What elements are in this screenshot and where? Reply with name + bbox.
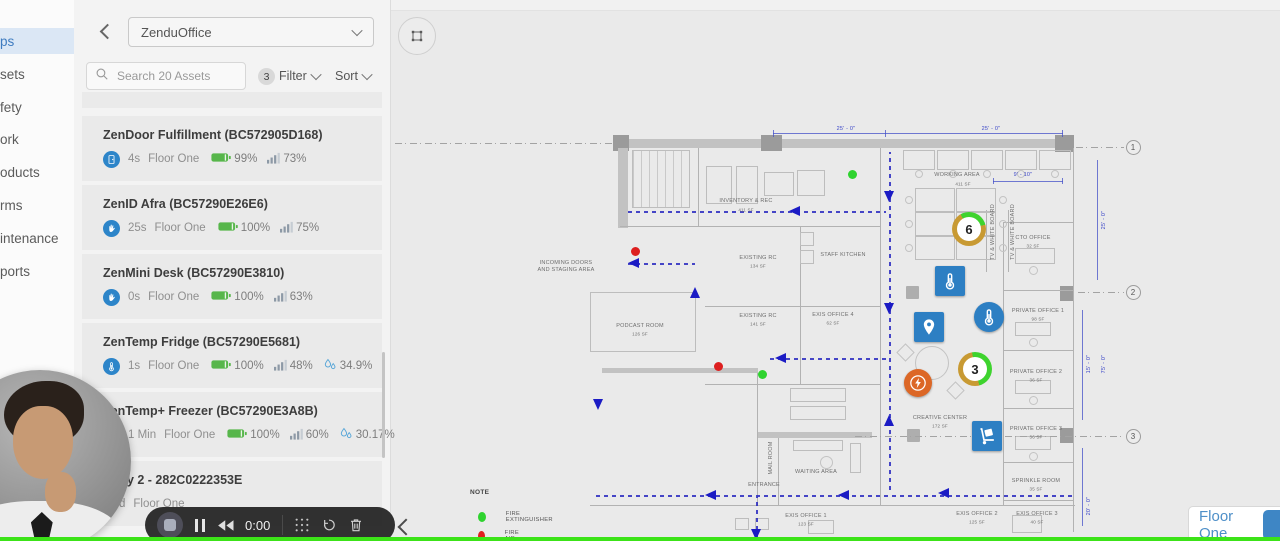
plan-disc	[1051, 170, 1059, 178]
humidity-group: 34.9%	[323, 358, 373, 374]
signal-group: 48%	[274, 359, 313, 374]
plan-line	[1003, 350, 1073, 351]
dimension-line	[1062, 178, 1063, 184]
reference-dash-line	[1076, 147, 1124, 148]
grid-reference-bubble: 3	[1126, 429, 1141, 444]
energy-marker[interactable]	[904, 369, 932, 397]
path-dash-line	[889, 152, 891, 490]
fire-extinguisher-dot	[848, 170, 857, 179]
legend-item: FIRE EXTINGUISHER	[478, 511, 555, 523]
asset-floor: Floor One	[148, 291, 199, 303]
battery-group: 100%	[218, 221, 270, 235]
asset-list-item[interactable]: ZenDoor Fulfillment (BC572905D168)4sFloo…	[82, 116, 382, 181]
asset-last-seen: 25s	[128, 222, 147, 234]
sidebar-item-sets[interactable]: sets	[0, 61, 74, 87]
signal-icon	[267, 152, 283, 167]
battery-group: 100%	[227, 428, 279, 442]
plan-line	[705, 306, 880, 307]
dimension-line	[1082, 310, 1083, 420]
plan-box	[793, 440, 843, 451]
room-label: 36 SF	[1029, 435, 1042, 440]
room-label: 126 SF	[632, 332, 648, 337]
room-label: PODCAST ROOM	[616, 323, 664, 329]
plan-box	[915, 236, 955, 260]
room-label: EXIS OFFICE 4	[812, 312, 853, 318]
dimension-line	[1082, 448, 1083, 526]
asset-name: ZenTemp+ Freezer (BC57290E3A8B)	[103, 404, 318, 418]
battery-group: 99%	[211, 152, 257, 166]
app-root: pssetsfetyorkoductsrmsintenanceports Zen…	[0, 0, 1280, 541]
list-scrollbar[interactable]	[382, 352, 385, 458]
direction-arrow-down	[884, 303, 894, 314]
plan-disc	[983, 170, 991, 178]
sidebar-item-rms[interactable]: rms	[0, 192, 74, 218]
signal-value: 60%	[306, 429, 329, 441]
plan-fill	[618, 148, 628, 228]
direction-arrow-left	[938, 488, 949, 498]
battery-icon	[211, 359, 234, 373]
humidity-value: 34.9%	[340, 360, 373, 372]
restart-icon[interactable]	[321, 517, 337, 533]
plan-box	[903, 150, 935, 170]
asset-floor: Floor One	[164, 429, 215, 441]
plan-disc	[905, 244, 913, 252]
room-label: EXIS OFFICE 3	[1016, 511, 1057, 517]
dimension-label: 9' - 10"	[1014, 172, 1033, 178]
building-selector[interactable]: ZenduOffice	[128, 17, 374, 47]
room-label: 411 SF	[738, 208, 753, 213]
plan-box	[797, 170, 825, 196]
signal-group: 73%	[267, 152, 306, 167]
dimension-label: 25' - 0"	[837, 126, 856, 132]
asset-list-item[interactable]: ZenTemp Fridge (BC57290E5681)1sFloor One…	[82, 323, 382, 388]
battery-icon	[211, 290, 234, 304]
floor-selector[interactable]: Floor One	[1188, 506, 1280, 541]
asset-last-seen: 1s	[128, 360, 140, 372]
asset-last-seen: 1 Min	[128, 429, 156, 441]
sidebar-item-ork[interactable]: ork	[0, 126, 74, 152]
direction-arrow-left	[628, 258, 639, 268]
direction-arrow-left	[705, 490, 716, 500]
fire-aid-dot	[714, 362, 723, 371]
plan-box	[1039, 150, 1071, 170]
sidebar-item-ps[interactable]: ps	[0, 28, 74, 54]
plan-line	[590, 505, 1075, 506]
dimension-label: 25' - 0"	[1101, 211, 1107, 230]
plan-disc	[820, 456, 833, 469]
grid-reference-bubble: 2	[1126, 285, 1141, 300]
battery-icon	[218, 221, 241, 235]
signal-value: 48%	[290, 360, 313, 372]
path-dash-line	[628, 211, 886, 213]
plan-disc	[999, 220, 1007, 228]
direction-arrow-up	[690, 287, 700, 298]
direction-arrow-left	[775, 353, 786, 363]
plan-disc	[1029, 266, 1038, 275]
plan-box	[971, 150, 1003, 170]
plan-disc	[905, 196, 913, 204]
plan-box	[937, 150, 969, 170]
sidebar-item-oducts[interactable]: oducts	[0, 159, 74, 185]
plan-line	[880, 148, 881, 505]
signal-group: 75%	[280, 221, 319, 236]
direction-arrow-up	[884, 415, 894, 426]
plan-disc	[1029, 452, 1038, 461]
plan-disc	[1029, 338, 1038, 347]
back-chevron-icon[interactable]	[100, 24, 116, 40]
asset-search[interactable]	[86, 62, 246, 90]
asset-name: ZenDoor Fulfillment (BC572905D168)	[103, 128, 323, 142]
search-input[interactable]	[115, 68, 239, 84]
plan-box	[590, 292, 696, 352]
asset-name: ZenID Afra (BC57290E26E6)	[103, 197, 268, 211]
sidebar-item-label: sets	[0, 67, 25, 82]
plan-box	[790, 388, 846, 402]
hand-id-icon	[103, 220, 120, 237]
room-label: EXISTING RC	[739, 313, 776, 319]
location-pin-icon	[919, 317, 939, 337]
plan-line	[1073, 148, 1074, 532]
room-label: 98 SF	[1031, 317, 1044, 322]
dimension-line	[993, 178, 994, 184]
legend-label: FIRE EXTINGUISHER	[506, 511, 555, 523]
signal-icon	[280, 221, 296, 236]
signal-value: 75%	[296, 222, 319, 234]
plan-line	[698, 148, 699, 226]
humidity-value: 30.17%	[356, 429, 395, 441]
location-pin-marker[interactable]	[914, 312, 944, 342]
plan-line	[705, 384, 880, 385]
grid-reference-bubble: 1	[1126, 140, 1141, 155]
plan-box	[915, 188, 955, 212]
sidebar-item-label: intenance	[0, 231, 59, 246]
plan-box	[1015, 322, 1051, 336]
plan-line	[1003, 462, 1073, 463]
asset-name: ZenMini Desk (BC57290E3810)	[103, 266, 284, 280]
room-label: 32 SF	[1026, 244, 1039, 249]
asset-last-seen: 4s	[128, 153, 140, 165]
thermometer-marker[interactable]	[935, 266, 965, 296]
plan-line	[1003, 500, 1073, 501]
room-label: WORKING AREA	[934, 172, 980, 178]
plan-box	[850, 443, 861, 473]
filter-button[interactable]: Filter	[279, 66, 320, 86]
plan-line	[1003, 290, 1073, 291]
recording-border	[0, 537, 1280, 541]
signal-group: 63%	[274, 290, 313, 305]
dimension-line	[885, 130, 886, 137]
room-label: CREATIVE CENTER	[913, 415, 967, 421]
room-label: 40 SF	[1030, 520, 1043, 525]
direction-arrow-down	[593, 399, 603, 410]
signal-icon	[274, 290, 290, 305]
humidity-group: 30.17%	[339, 427, 395, 443]
room-label: 123 SF	[798, 522, 814, 527]
asset-list-item[interactable]: ZenMini Desk (BC57290E3810)0sFloor One10…	[82, 254, 382, 319]
plan-disc	[999, 196, 1007, 204]
plan-col	[1060, 286, 1074, 301]
legend-title: NOTE	[470, 489, 489, 496]
plan-line	[1003, 408, 1073, 409]
battery-value: 100%	[241, 222, 270, 234]
plan-fill	[758, 432, 872, 438]
battery-icon	[227, 428, 250, 442]
sidebar-item-fety[interactable]: fety	[0, 94, 74, 120]
plan-dia	[896, 343, 914, 361]
inactive-marker[interactable]	[906, 286, 919, 299]
direction-arrow-down	[884, 191, 894, 202]
plan-box	[1005, 150, 1037, 170]
path-dash-line	[770, 358, 889, 360]
sidebar-item-intenance[interactable]: intenance	[0, 225, 74, 251]
plan-line	[1008, 210, 1009, 272]
asset-last-seen: 0s	[128, 291, 140, 303]
room-label: 36 SF	[1029, 378, 1042, 383]
plan-stairs	[632, 150, 690, 208]
inactive-marker[interactable]	[907, 429, 920, 442]
sidebar-item-label: ps	[0, 34, 14, 49]
sidebar-item-label: ports	[0, 264, 30, 279]
room-label: EXISTING RC	[739, 255, 776, 261]
signal-group: 60%	[290, 428, 329, 443]
sidebar-item-label: rms	[0, 198, 23, 213]
signal-value: 63%	[290, 291, 313, 303]
dimension-label: 20' - 0"	[1086, 497, 1092, 516]
plan-fill	[618, 139, 1070, 148]
plan-col	[761, 135, 782, 151]
thermometer-marker[interactable]	[974, 302, 1004, 332]
hand-truck-marker[interactable]	[972, 421, 1002, 451]
fire-extinguisher-dot	[758, 370, 767, 379]
plan-box	[764, 172, 794, 196]
battery-value: 100%	[234, 360, 263, 372]
room-label: STAFF KITCHEN	[820, 252, 865, 258]
dimension-line	[773, 133, 1063, 134]
floor-selector-swatch	[1263, 510, 1280, 540]
sort-button[interactable]: Sort	[335, 66, 371, 86]
chevron-down-icon	[351, 25, 362, 36]
plan-box	[915, 212, 955, 236]
asset-meta: 1sFloor One100%48%34.9%	[103, 357, 382, 375]
reference-dash-line	[395, 143, 615, 144]
room-label: 172 SF	[932, 424, 948, 429]
battery-icon	[211, 152, 234, 166]
stop-button[interactable]	[157, 512, 183, 538]
thermometer-icon	[103, 358, 120, 375]
direction-arrow-left	[789, 206, 800, 216]
direction-arrow-left	[838, 490, 849, 500]
room-label: ENTRANCE	[748, 482, 780, 488]
map-legend: NOTE FIRE EXTINGUISHERFIRE AID	[470, 489, 489, 496]
dimension-line	[773, 130, 774, 137]
path-dash-line	[596, 495, 1072, 497]
room-label: EXIS OFFICE 1	[785, 513, 826, 519]
asset-name: ay 2 - 282C0222353E	[120, 473, 242, 487]
recorder-bar: 0:00	[145, 507, 395, 541]
battery-value: 100%	[250, 429, 279, 441]
filter-count-badge: 3	[258, 68, 275, 85]
battery-value: 100%	[234, 291, 263, 303]
plan-box	[790, 406, 846, 420]
signal-icon	[290, 428, 306, 443]
thermometer-icon	[979, 307, 999, 327]
room-label: INVENTORY & REC	[719, 198, 772, 204]
building-selector-value: ZenduOffice	[141, 25, 212, 40]
asset-cluster-marker[interactable]: 3	[958, 352, 992, 386]
room-label: PRIVATE OFFICE 2	[1010, 369, 1062, 375]
room-label: 62 SF	[826, 321, 839, 326]
sidebar-item-label: oducts	[0, 165, 40, 180]
room-label: 134 SF	[750, 264, 766, 269]
signal-icon	[274, 359, 290, 374]
room-label: EXIS OFFICE 2	[956, 511, 997, 517]
battery-group: 100%	[211, 359, 263, 373]
room-label: WAITING AREA	[795, 469, 837, 475]
dimension-line	[1062, 130, 1063, 137]
rewind-icon[interactable]	[217, 519, 235, 532]
asset-list-item[interactable]: ZenID Afra (BC57290E26E6)25sFloor One100…	[82, 185, 382, 250]
asset-cluster-marker[interactable]: 6	[952, 212, 986, 246]
recording-time: 0:00	[245, 518, 270, 533]
dimension-line	[1097, 160, 1098, 280]
plan-box	[800, 232, 814, 246]
asset-meta: 25sFloor One100%75%	[103, 219, 329, 237]
sidebar-item-label: fety	[0, 100, 22, 115]
battery-group: 100%	[211, 290, 263, 304]
dimension-label: 25' - 0"	[982, 126, 1001, 132]
crop-frame-button[interactable]	[398, 17, 436, 55]
asset-meta: 0sFloor One100%63%	[103, 288, 323, 306]
room-label: TV & WHITE BOARD	[990, 204, 996, 260]
signal-value: 73%	[283, 153, 306, 165]
asset-floor: Floor One	[155, 222, 206, 234]
chevron-down-icon	[361, 69, 372, 80]
room-label: 411 SF	[955, 182, 970, 187]
plan-dia	[946, 381, 964, 399]
room-label: AND STAGING AREA	[538, 267, 595, 273]
plan-line	[620, 226, 881, 227]
energy-icon	[908, 373, 928, 393]
asset-meta: 4sFloor One99%73%	[103, 150, 316, 168]
chevron-down-icon	[310, 69, 321, 80]
dimension-label: 15' - 0"	[1086, 355, 1092, 374]
humidity-icon	[339, 427, 356, 443]
divider	[282, 515, 283, 535]
room-label: MAIL ROOM	[768, 441, 774, 474]
room-label: TV & WHITE BOARD	[1010, 204, 1016, 260]
room-label: 125 SF	[969, 520, 985, 525]
plan-disc	[905, 220, 913, 228]
hand-id-icon	[103, 289, 120, 306]
asset-floor: Floor One	[148, 153, 199, 165]
dimension-label: 75' - 0"	[1101, 355, 1107, 374]
plan-disc	[1029, 396, 1038, 405]
room-label: 141 SF	[750, 322, 766, 327]
room-label: PRIVATE OFFICE 3	[1010, 426, 1062, 432]
reference-dash-line	[1078, 292, 1124, 293]
cluster-count: 3	[963, 357, 987, 381]
humidity-icon	[323, 358, 340, 374]
plan-disc	[915, 170, 923, 178]
battery-value: 99%	[234, 153, 257, 165]
dots-grid-icon[interactable]	[294, 517, 310, 533]
room-label: 35 SF	[1029, 487, 1042, 492]
asset-row-partial	[82, 92, 382, 108]
fire-aid-dot	[631, 247, 640, 256]
hand-truck-icon	[977, 426, 997, 446]
plan-fill	[602, 368, 758, 373]
plan-box	[800, 250, 814, 264]
plan-disc	[999, 244, 1007, 252]
asset-meta: 1 MinFloor One100%60%30.17%	[103, 426, 405, 444]
thermometer-icon	[940, 271, 960, 291]
door-icon	[103, 151, 120, 168]
room-label: CTO OFFICE	[1015, 235, 1050, 241]
pause-button[interactable]	[195, 519, 205, 532]
asset-floor: Floor One	[148, 360, 199, 372]
room-label: PRIVATE OFFICE 1	[1012, 308, 1064, 314]
cluster-count: 6	[957, 217, 981, 241]
room-label: SPRINKLE ROOM	[1012, 478, 1060, 484]
plan-box	[735, 518, 749, 530]
dimension-line	[993, 181, 1063, 182]
legend-dot	[478, 512, 486, 522]
sidebar-item-ports[interactable]: ports	[0, 258, 74, 284]
trash-icon[interactable]	[348, 517, 364, 533]
search-icon	[95, 67, 109, 86]
plan-box	[1015, 248, 1055, 264]
room-label: INCOMING DOORS	[540, 260, 593, 266]
asset-name: ZenTemp Fridge (BC57290E5681)	[103, 335, 300, 349]
sidebar-item-label: ork	[0, 132, 19, 147]
